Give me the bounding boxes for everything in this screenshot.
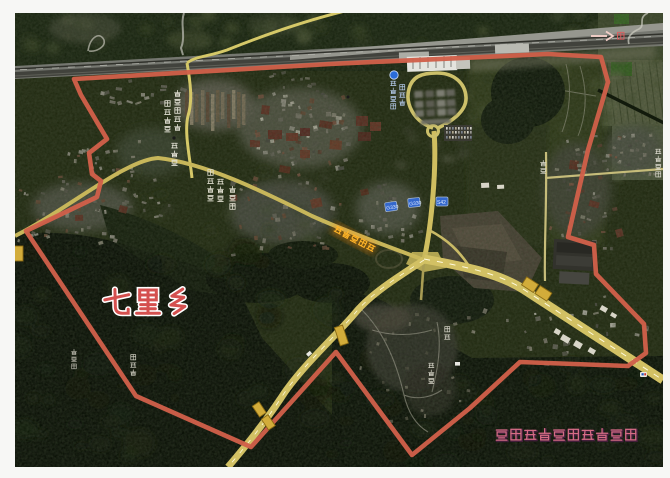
svg-text:S42: S42 bbox=[437, 200, 446, 206]
